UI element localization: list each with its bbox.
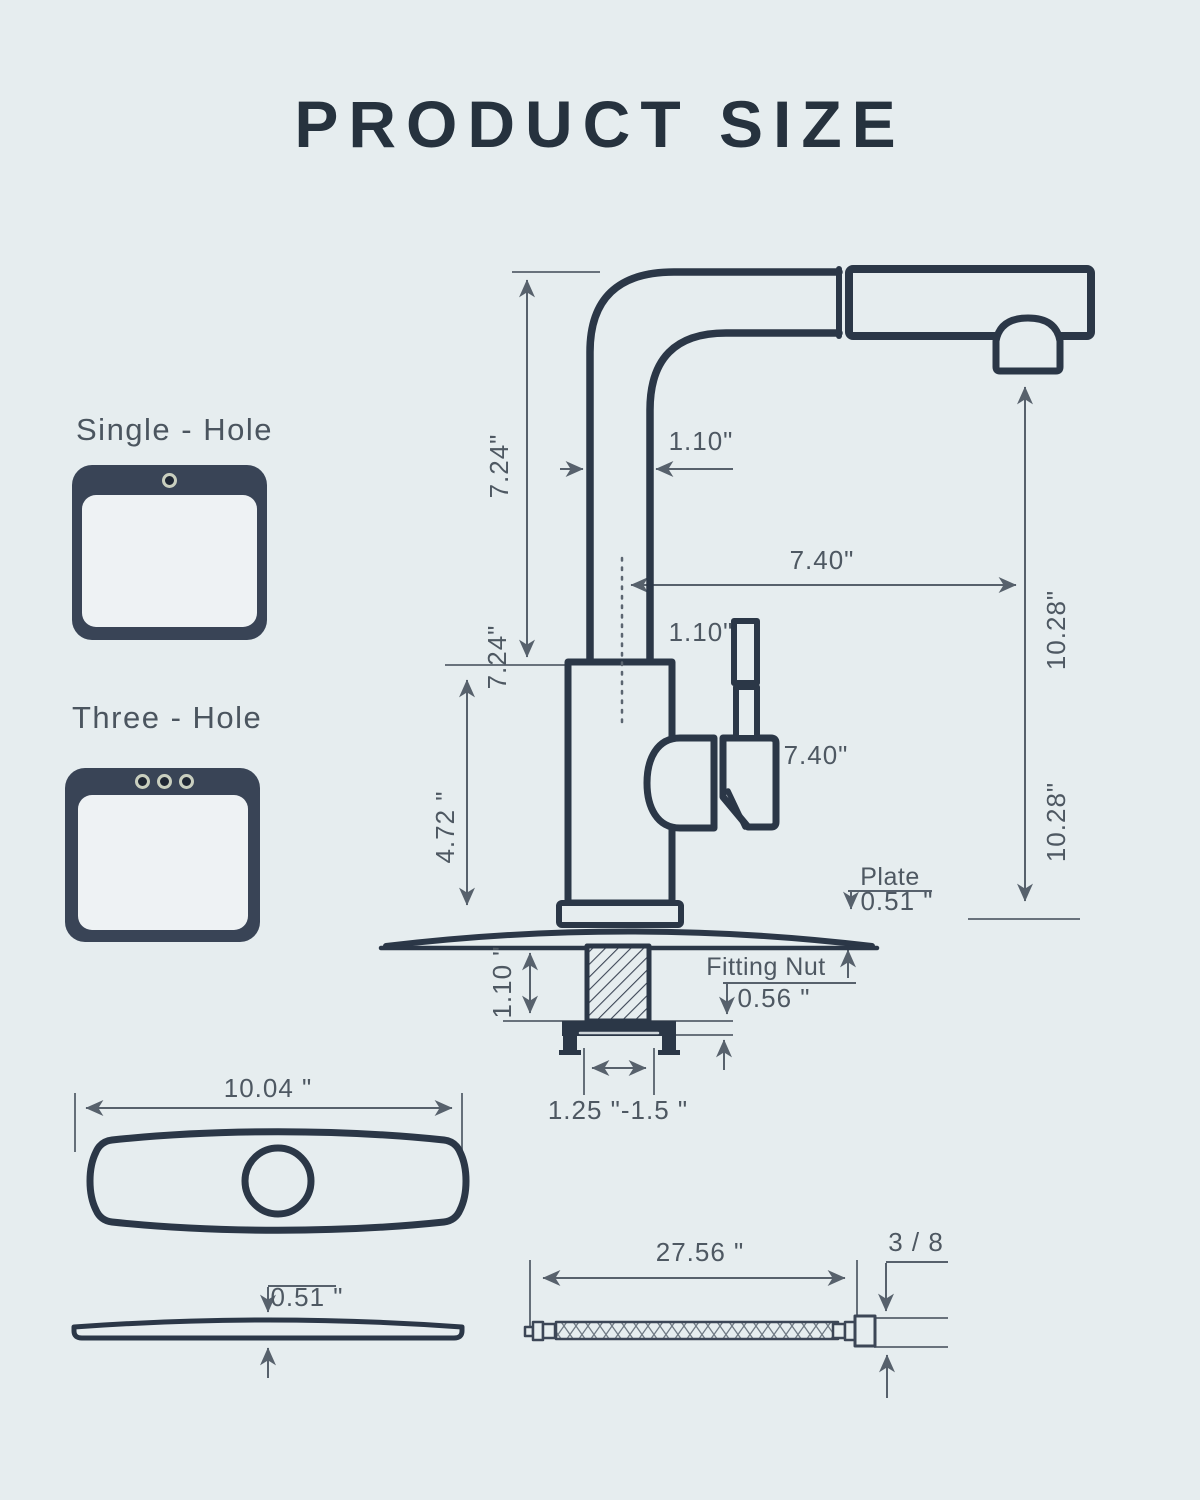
dim-base-height: 4.72 " [430,790,460,863]
deck-plate-hole [245,1148,311,1214]
hose-fitting [533,1322,543,1340]
hose-fitting [833,1324,845,1338]
body-flange [559,903,681,925]
handle-lever-top [734,621,757,683]
nut-leg [662,1036,676,1052]
dim-shank-length: 1.10 " [487,945,517,1018]
dim-spout-reach: 7.40" [790,545,855,575]
nut-leg [563,1036,577,1052]
nut-foot [658,1050,680,1055]
nut-foot [559,1050,581,1055]
dim-spout-height: 7.24" [484,434,514,499]
threaded-shank [587,946,649,1021]
spout-inner-line [650,333,839,664]
dim-hose-connector-size: 3 / 8 [888,1227,944,1257]
product-size-page: PRODUCT SIZE Single - Hole Three - Hole [0,0,1200,1500]
dim-body-height: 7.24" [482,625,512,690]
fitting-nut-callout-label: Fitting Nut [706,953,825,981]
faucet-drawing [74,269,1091,1346]
hose-connector-nut [855,1316,875,1346]
dim-outlet-height-1: 10.28" [1041,590,1071,670]
dim-fitting-nut-thickness: 0.56 " [737,983,810,1013]
hose-fitting [543,1324,555,1338]
dim-plate-width: 10.04 " [224,1073,313,1103]
deck-plate-side-view [74,1320,462,1338]
handle-base [723,738,776,827]
hose-braid [556,1322,838,1339]
sprayer-nozzle [996,318,1060,371]
dim-hose-length: 27.56 " [656,1237,745,1267]
faucet-dimension-diagram: 7.24" 1.10" 7.40" 7.24" 1.10" 7.40" 4.72… [0,0,1200,1500]
dim-plate-side-thickness: 0.51 " [270,1282,343,1312]
handle-lever-bottom [736,687,757,738]
dim-handle-width: 1.10" [669,617,734,647]
supply-hose [525,1316,875,1346]
dim-outlet-height-2: 10.28" [1041,782,1071,862]
handle-hub [647,738,714,828]
dim-plate-thickness: 0.51 " [860,886,933,916]
dim-hole-size-range: 1.25 "-1.5 " [548,1095,688,1125]
dim-handle-height: 7.40" [784,740,849,770]
fitting-nut [559,1021,680,1055]
dim-spout-pipe-width: 1.10" [669,426,734,456]
